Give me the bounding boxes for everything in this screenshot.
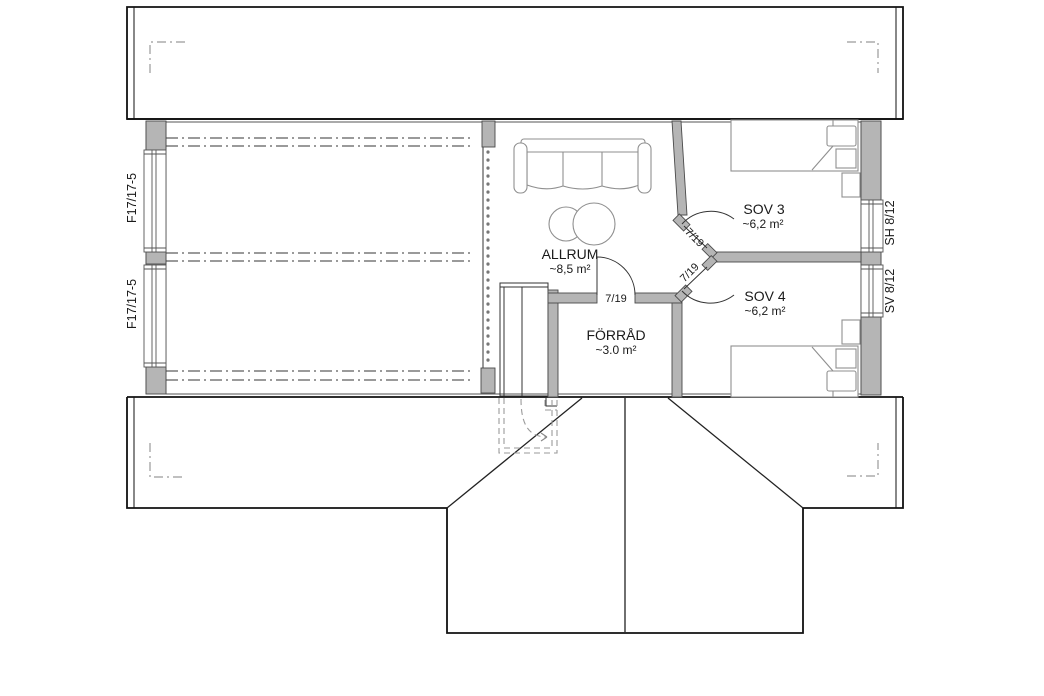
door-forrad-label: 7/19	[605, 293, 626, 305]
door-sov3-label: 7/19	[682, 226, 706, 250]
lower-roof-outline	[127, 397, 903, 633]
window-f17-lower	[144, 265, 166, 367]
door-sov4-label: 7/19	[678, 261, 702, 285]
balustrade	[481, 121, 495, 393]
floor-plan-drawing: ALLRUM ~8,5 m² FÖRRÅD ~3.0 m² SOV 3 ~6,2…	[0, 0, 1044, 696]
room-sov4-area: ~6,2 m²	[744, 304, 785, 318]
room-forrad-name: FÖRRÅD	[586, 326, 645, 343]
nightstand-sov4	[842, 320, 860, 344]
bed-sov3	[731, 120, 860, 197]
room-forrad-area: ~3.0 m²	[595, 343, 636, 357]
nightstand-sov3	[842, 173, 860, 197]
sofa	[514, 139, 651, 193]
window-sv-label: SV 8/12	[883, 269, 897, 314]
upper-roof-outline	[127, 7, 903, 119]
left-exterior-wall	[144, 121, 166, 394]
room-sov3-name: SOV 3	[743, 201, 784, 217]
window-f17-upper	[144, 150, 166, 252]
centerlines	[166, 138, 473, 380]
room-sov3-area: ~6,2 m²	[742, 217, 783, 231]
window-f17-lower-label: F17/17-5	[125, 279, 139, 329]
window-f17-upper-label: F17/17-5	[125, 173, 139, 223]
window-sh-label: SH 8/12	[883, 200, 897, 245]
room-sov4-name: SOV 4	[744, 288, 785, 304]
room-allrum-name: ALLRUM	[542, 246, 599, 262]
coffee-tables	[549, 203, 615, 245]
floor-plan: ALLRUM ~8,5 m² FÖRRÅD ~3.0 m² SOV 3 ~6,2…	[0, 0, 1044, 696]
bed-sov4	[731, 320, 860, 397]
door-forrad	[597, 257, 635, 295]
right-exterior-wall	[861, 121, 883, 395]
window-sh-8-12	[861, 200, 883, 252]
window-sv-8-12	[861, 265, 883, 317]
room-allrum-area: ~8,5 m²	[549, 262, 590, 276]
